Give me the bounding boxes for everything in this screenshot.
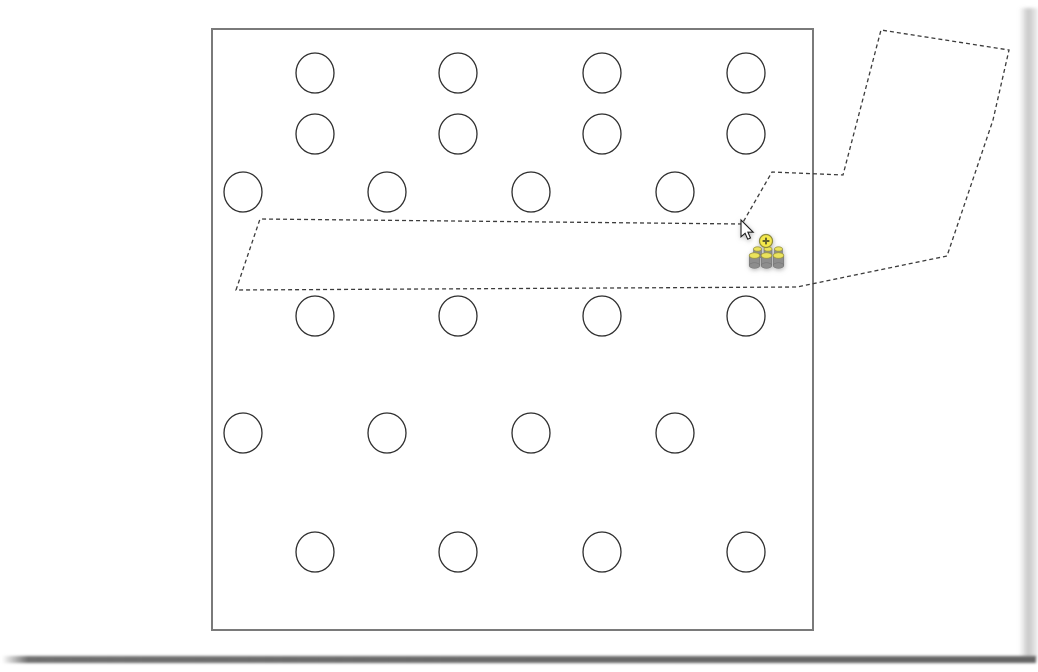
seat-circle[interactable] bbox=[583, 114, 621, 154]
multi-objects-icon bbox=[749, 247, 784, 268]
cylinder-top bbox=[773, 253, 784, 259]
cylinder-top bbox=[749, 253, 760, 259]
seat-circle[interactable] bbox=[296, 53, 334, 93]
seat-circle[interactable] bbox=[583, 53, 621, 93]
cylinder-top bbox=[775, 247, 783, 251]
cylinder-top bbox=[761, 253, 772, 259]
seat-circle[interactable] bbox=[296, 296, 334, 336]
seat-circle[interactable] bbox=[727, 114, 765, 154]
scene-svg bbox=[0, 0, 1038, 672]
seat-circle[interactable] bbox=[512, 172, 550, 212]
seat-circle[interactable] bbox=[656, 413, 694, 453]
seat-circle[interactable] bbox=[583, 532, 621, 572]
seat-circle[interactable] bbox=[583, 296, 621, 336]
seat-circle[interactable] bbox=[439, 532, 477, 572]
cylinder-top bbox=[754, 247, 762, 251]
seat-circle[interactable] bbox=[296, 114, 334, 154]
cylinder-bottom bbox=[773, 263, 784, 269]
seat-circle[interactable] bbox=[224, 413, 262, 453]
application-window bbox=[0, 0, 1038, 672]
seat-circle[interactable] bbox=[727, 296, 765, 336]
copy-plus-icon bbox=[760, 235, 773, 248]
seat-circle[interactable] bbox=[368, 172, 406, 212]
cylinder-bottom bbox=[761, 263, 772, 269]
seat-circle[interactable] bbox=[512, 413, 550, 453]
seat-circle[interactable] bbox=[656, 172, 694, 212]
seat-circle[interactable] bbox=[439, 296, 477, 336]
cylinder-bottom bbox=[749, 263, 760, 269]
seat-circle[interactable] bbox=[727, 53, 765, 93]
seat-circle[interactable] bbox=[368, 413, 406, 453]
seat-circle[interactable] bbox=[439, 114, 477, 154]
seat-circle[interactable] bbox=[224, 172, 262, 212]
seat-circle[interactable] bbox=[296, 532, 334, 572]
seat-circle[interactable] bbox=[439, 53, 477, 93]
seat-circle[interactable] bbox=[727, 532, 765, 572]
